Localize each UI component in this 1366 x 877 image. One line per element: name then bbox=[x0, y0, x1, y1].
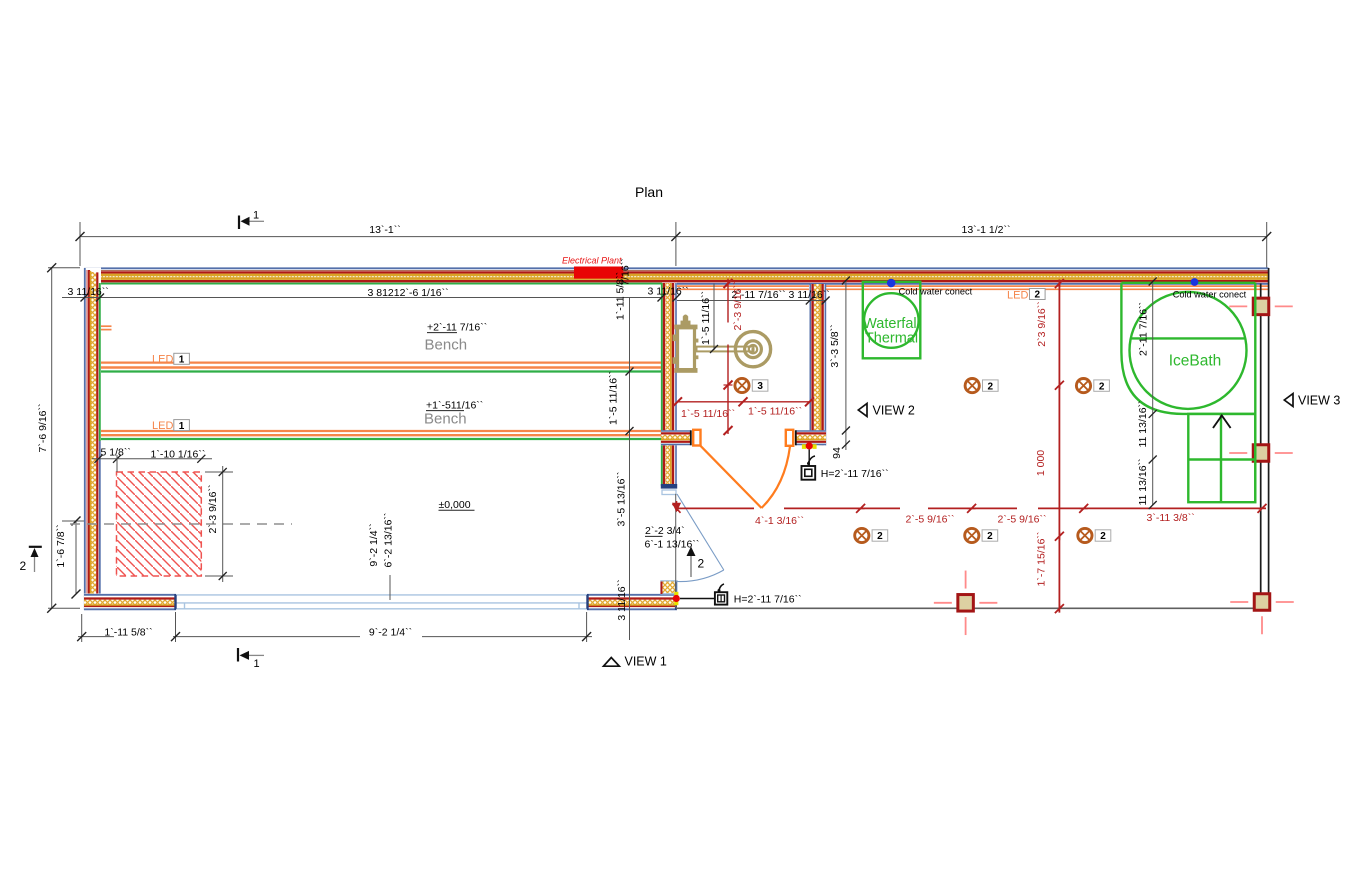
svg-text:3`-5 13/16``: 3`-5 13/16`` bbox=[616, 472, 628, 527]
svg-text:1: 1 bbox=[253, 210, 259, 222]
svg-text:1`-5 11/16``: 1`-5 11/16`` bbox=[700, 291, 712, 345]
svg-text:H=2`-11 7/16``: H=2`-11 7/16`` bbox=[821, 468, 889, 480]
svg-text:5 1/8``: 5 1/8`` bbox=[101, 447, 131, 459]
svg-text:VIEW 2: VIEW 2 bbox=[873, 404, 915, 418]
svg-text:2`-3 9/16``: 2`-3 9/16`` bbox=[732, 281, 744, 330]
svg-text:1: 1 bbox=[254, 658, 260, 670]
svg-text:2`-5 9/16``: 2`-5 9/16`` bbox=[906, 514, 955, 526]
svg-text:94: 94 bbox=[831, 447, 843, 459]
svg-text:3`-11 3/8``: 3`-11 3/8`` bbox=[1147, 512, 1195, 524]
svg-text:2`-11 7/16``: 2`-11 7/16`` bbox=[1138, 302, 1150, 356]
svg-text:LED: LED bbox=[152, 420, 173, 432]
svg-text:2: 2 bbox=[1035, 290, 1041, 301]
svg-text:Plan: Plan bbox=[635, 184, 663, 200]
svg-text:1: 1 bbox=[179, 421, 185, 432]
svg-text:3 11/16``: 3 11/16`` bbox=[648, 286, 689, 298]
svg-text:3 11/16``: 3 11/16`` bbox=[616, 579, 628, 620]
svg-text:4`-1 3/16``: 4`-1 3/16`` bbox=[755, 515, 804, 527]
svg-text:13`-1 1/2``: 13`-1 1/2`` bbox=[961, 224, 1010, 236]
svg-text:2`3 9/16``: 2`3 9/16`` bbox=[1036, 301, 1048, 347]
svg-text:1`-5 11/16``: 1`-5 11/16`` bbox=[748, 406, 802, 418]
svg-text:11 13/16``: 11 13/16`` bbox=[1137, 400, 1149, 447]
svg-text:13`-1``: 13`-1`` bbox=[369, 224, 401, 236]
svg-text:Electrical Plant: Electrical Plant bbox=[562, 256, 622, 266]
svg-text:9`-2 1/4``: 9`-2 1/4`` bbox=[369, 627, 412, 639]
svg-text:2: 2 bbox=[1100, 531, 1106, 542]
svg-text:2: 2 bbox=[877, 531, 883, 542]
svg-text:1`-5 11/16``: 1`-5 11/16`` bbox=[608, 371, 620, 425]
svg-text:2`-2 3/4`: 2`-2 3/4` bbox=[645, 525, 685, 537]
svg-text:Bench: Bench bbox=[424, 411, 467, 428]
svg-text:Bench: Bench bbox=[425, 337, 468, 354]
svg-text:VIEW 3: VIEW 3 bbox=[1298, 394, 1340, 408]
svg-text:1`-7 15/16``: 1`-7 15/16`` bbox=[1036, 532, 1048, 587]
svg-text:1`-10 1/16``: 1`-10 1/16`` bbox=[151, 449, 206, 461]
svg-text:LED: LED bbox=[152, 354, 173, 366]
svg-text:3`-3 5/8``: 3`-3 5/8`` bbox=[829, 324, 841, 367]
svg-text:11 13/16``: 11 13/16`` bbox=[1137, 458, 1149, 505]
svg-text:Cold water conect: Cold water conect bbox=[899, 287, 973, 297]
svg-text:3 81212`-6 1/16``: 3 81212`-6 1/16`` bbox=[368, 287, 449, 299]
svg-text:VIEW 1: VIEW 1 bbox=[625, 655, 667, 669]
svg-text:2: 2 bbox=[987, 531, 993, 542]
svg-text:2`-5 9/16``: 2`-5 9/16`` bbox=[998, 514, 1047, 526]
svg-text:±0,000: ±0,000 bbox=[439, 499, 471, 511]
svg-text:3 11/16``: 3 11/16`` bbox=[68, 286, 109, 298]
svg-text:1 000: 1 000 bbox=[1035, 450, 1047, 476]
svg-text:2`-3 9/16``: 2`-3 9/16`` bbox=[207, 484, 219, 533]
svg-text:1`-5 11/16``: 1`-5 11/16`` bbox=[681, 408, 735, 420]
svg-text:Thermal: Thermal bbox=[865, 331, 918, 347]
svg-text:1`-6 7/8``: 1`-6 7/8`` bbox=[55, 524, 67, 567]
svg-text:1`-11 5/8``: 1`-11 5/8`` bbox=[104, 627, 152, 639]
svg-text:+2`-11 7/16``: +2`-11 7/16`` bbox=[427, 322, 487, 334]
svg-text:2: 2 bbox=[20, 559, 27, 573]
svg-text:3: 3 bbox=[757, 381, 763, 392]
svg-text:H=2`-11 7/16``: H=2`-11 7/16`` bbox=[734, 594, 802, 606]
svg-text:6`-2 13/16``: 6`-2 13/16`` bbox=[383, 513, 395, 568]
svg-text:2: 2 bbox=[1099, 381, 1105, 392]
svg-text:LED: LED bbox=[1007, 290, 1028, 302]
svg-text:9`-2 1/4``: 9`-2 1/4`` bbox=[368, 523, 380, 566]
svg-text:2`-11 7/16`` 3 11/16``: 2`-11 7/16`` 3 11/16`` bbox=[732, 289, 830, 301]
svg-text:2: 2 bbox=[988, 381, 994, 392]
svg-text:2: 2 bbox=[698, 557, 705, 571]
svg-text:IceBath: IceBath bbox=[1169, 353, 1222, 370]
svg-text:1: 1 bbox=[179, 355, 185, 366]
svg-text:6`-1 13/16``: 6`-1 13/16`` bbox=[645, 539, 700, 551]
svg-text:7`-6 9/16``: 7`-6 9/16`` bbox=[37, 403, 49, 452]
svg-text:7/16``: 7/16`` bbox=[620, 258, 632, 285]
svg-text:Cold water conect: Cold water conect bbox=[1173, 290, 1247, 300]
